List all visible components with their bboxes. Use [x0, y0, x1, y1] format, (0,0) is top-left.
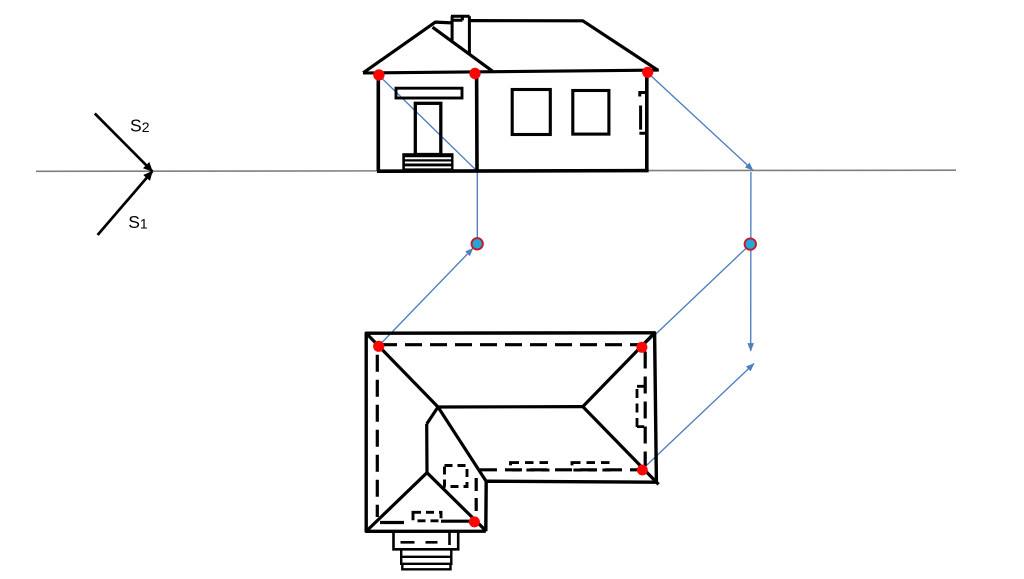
- svg-text:S1: S1: [128, 212, 148, 232]
- svg-text:S2: S2: [130, 116, 150, 136]
